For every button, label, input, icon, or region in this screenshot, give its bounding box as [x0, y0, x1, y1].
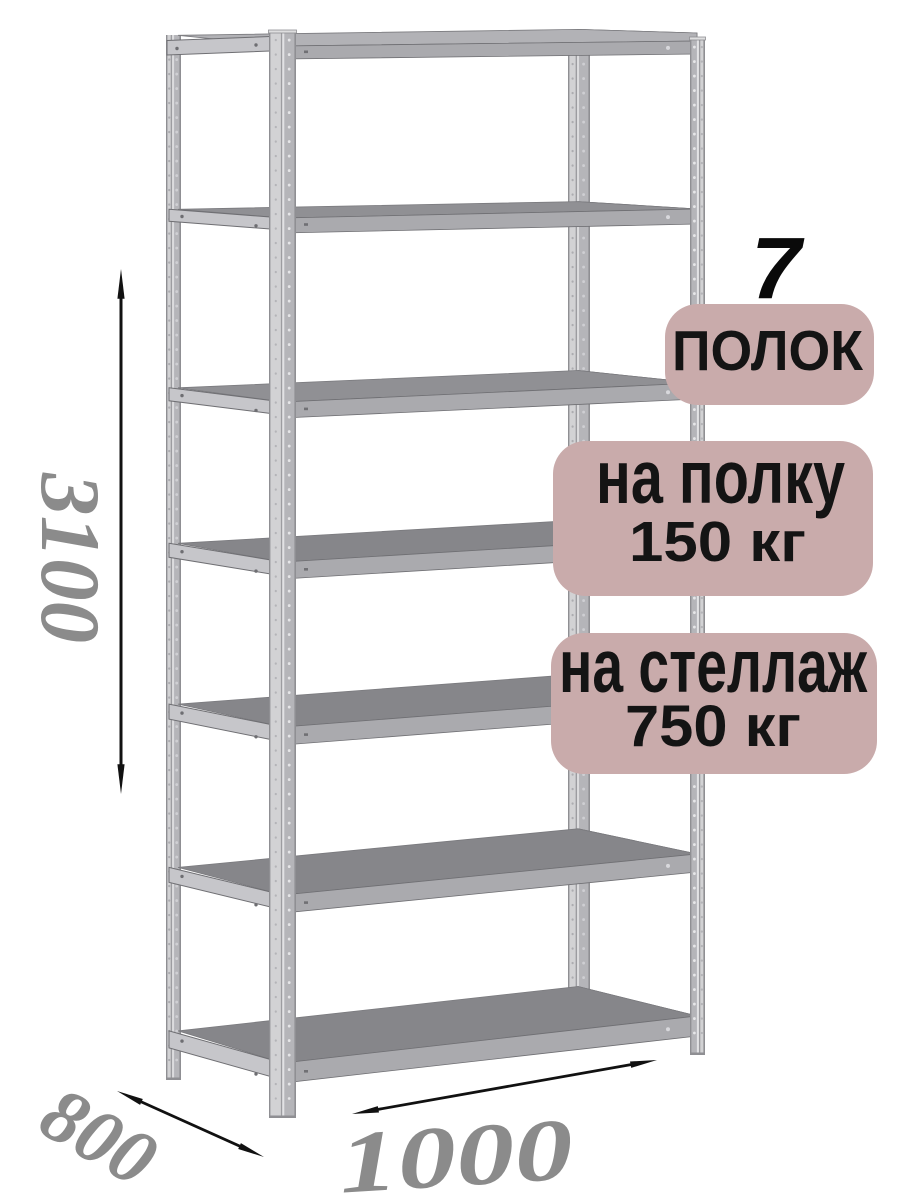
svg-text:7: 7 — [751, 220, 805, 317]
svg-text:ПОЛОК: ПОЛОК — [672, 319, 863, 382]
svg-text:750 кг: 750 кг — [625, 694, 801, 759]
svg-text:150 кг: 150 кг — [629, 511, 806, 574]
svg-text:на полку: на полку — [596, 436, 845, 519]
svg-text:3100: 3100 — [23, 472, 117, 643]
svg-text:1000: 1000 — [336, 1101, 575, 1200]
